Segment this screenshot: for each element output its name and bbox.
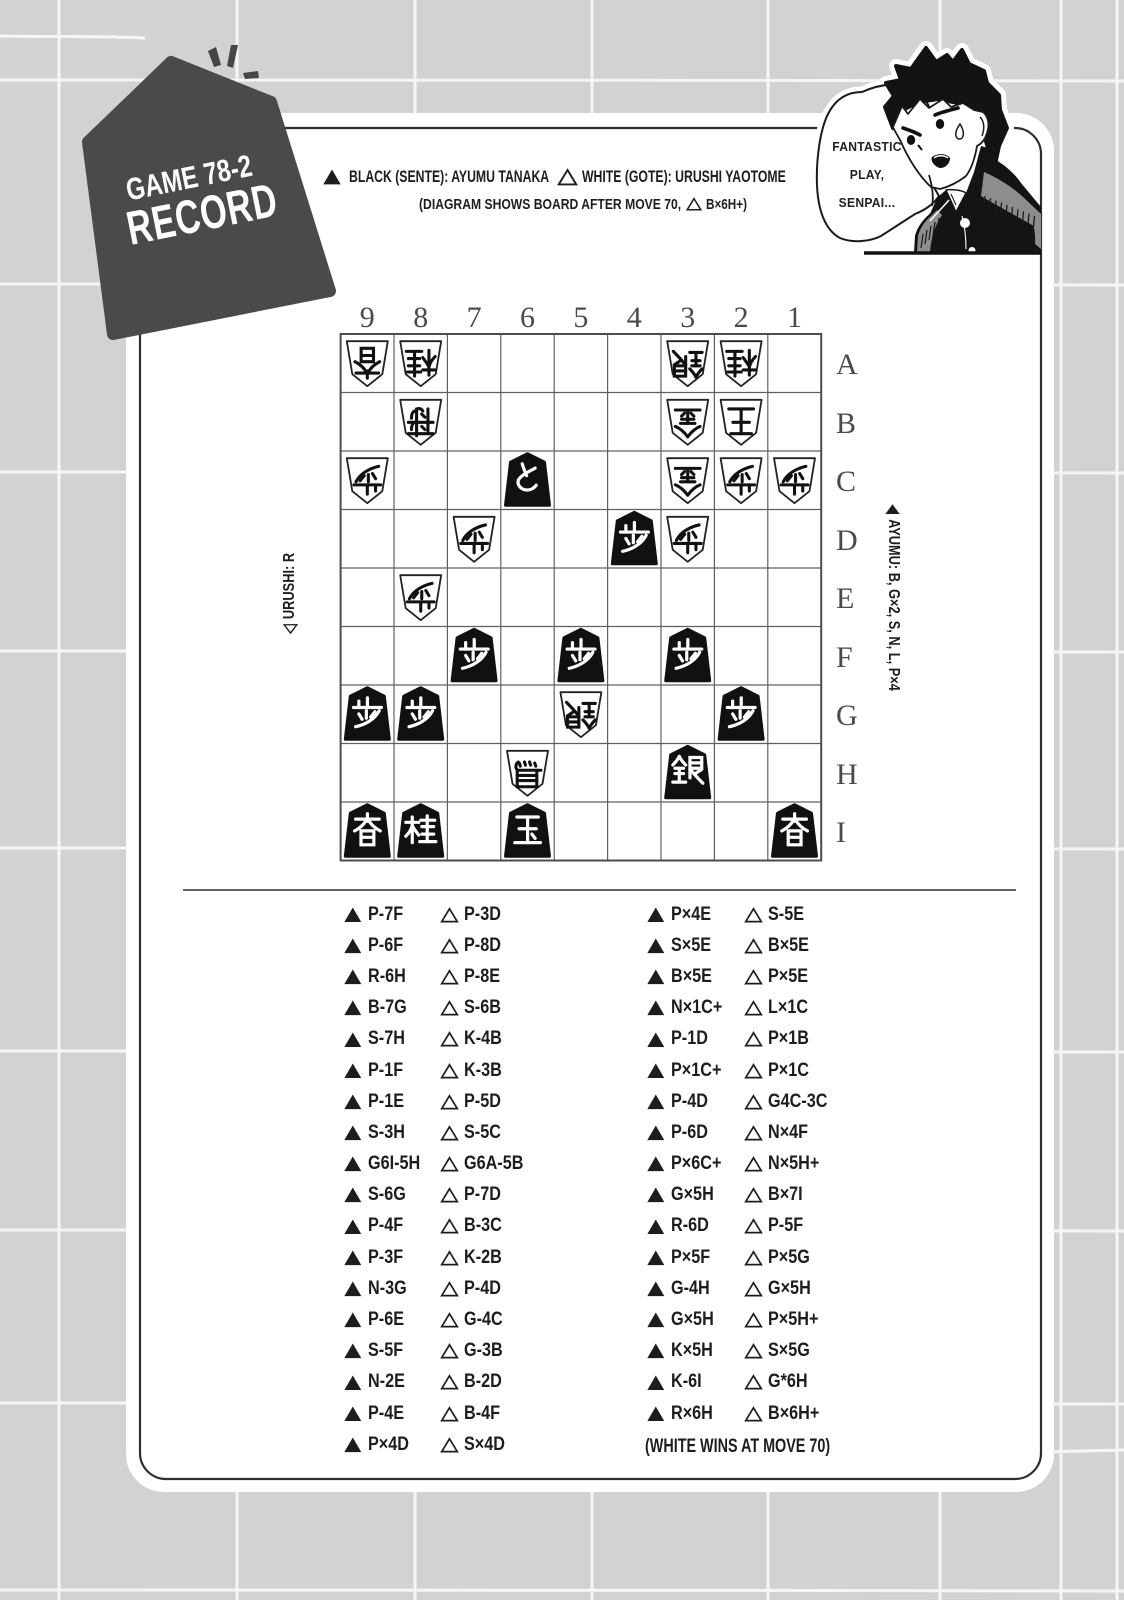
- svg-text:7: 7: [467, 301, 482, 334]
- svg-text:5: 5: [573, 301, 588, 334]
- svg-text:D: D: [836, 524, 858, 557]
- svg-text:1: 1: [787, 301, 802, 334]
- svg-text:2: 2: [734, 301, 749, 334]
- svg-text:3: 3: [680, 301, 695, 334]
- svg-text:A: A: [836, 348, 858, 381]
- svg-text:G: G: [836, 699, 858, 732]
- svg-text:E: E: [836, 582, 854, 615]
- svg-text:I: I: [836, 816, 846, 849]
- svg-text:F: F: [836, 641, 853, 674]
- svg-text:H: H: [836, 758, 858, 791]
- svg-text:B: B: [836, 407, 856, 440]
- svg-text:6: 6: [520, 301, 535, 334]
- svg-text:4: 4: [627, 301, 642, 334]
- svg-text:8: 8: [413, 301, 428, 334]
- svg-text:C: C: [836, 465, 856, 498]
- svg-text:9: 9: [360, 301, 375, 334]
